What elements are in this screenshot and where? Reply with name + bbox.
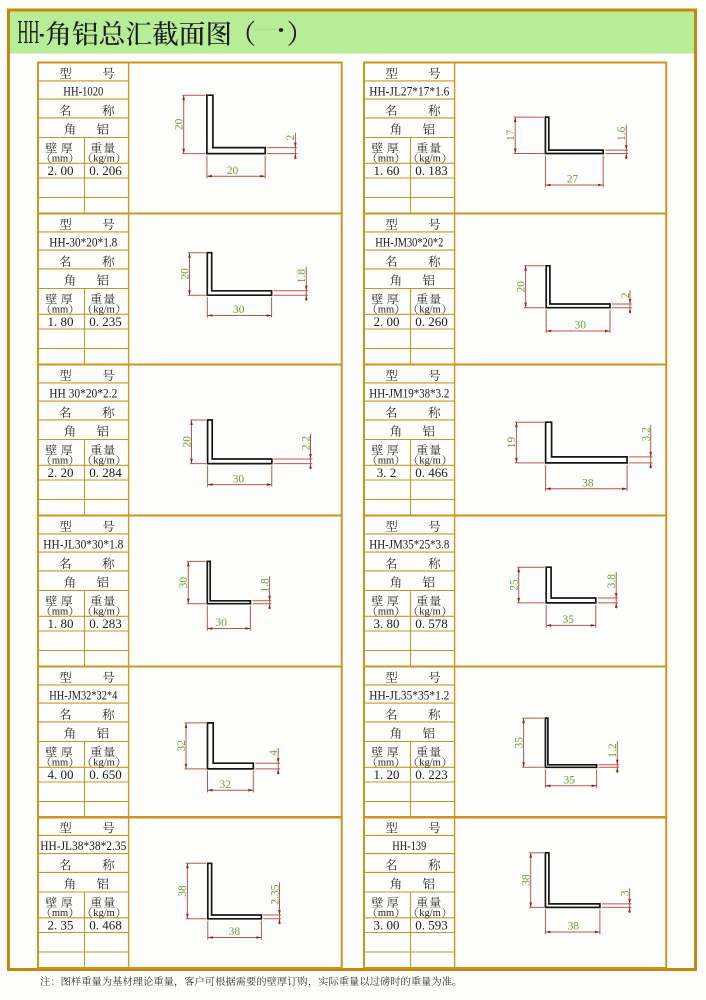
svg-text:2: 2 <box>620 292 632 298</box>
svg-text:4. 00: 4. 00 <box>48 767 74 782</box>
svg-text:0. 578: 0. 578 <box>415 616 448 631</box>
svg-text:1. 80: 1. 80 <box>48 314 74 329</box>
svg-text:35: 35 <box>564 775 576 787</box>
svg-text:35: 35 <box>562 614 574 626</box>
svg-text:3.8: 3.8 <box>606 574 618 589</box>
svg-text:1. 20: 1. 20 <box>374 767 400 782</box>
svg-text:HH-1020: HH-1020 <box>63 84 103 99</box>
svg-text:2.2: 2.2 <box>300 436 312 451</box>
svg-text:3. 80: 3. 80 <box>374 616 400 631</box>
svg-text:20: 20 <box>227 165 239 177</box>
svg-text:3: 3 <box>619 890 631 896</box>
svg-text:2.35: 2.35 <box>269 884 281 904</box>
svg-text:HH-JL35*35*1.2: HH-JL35*35*1.2 <box>369 688 449 703</box>
svg-text:HH-139: HH-139 <box>392 838 426 853</box>
svg-text:38: 38 <box>521 874 533 886</box>
svg-text:HH-JM19*38*3.2: HH-JM19*38*3.2 <box>369 386 449 401</box>
svg-text:0. 593: 0. 593 <box>415 917 448 932</box>
svg-text:0. 468: 0. 468 <box>89 917 122 932</box>
svg-text:30: 30 <box>178 577 190 589</box>
svg-text:17: 17 <box>505 129 517 141</box>
svg-text:HH-30*20*1.8: HH-30*20*1.8 <box>49 235 117 250</box>
svg-text:1.2: 1.2 <box>607 743 619 758</box>
svg-text:0. 183: 0. 183 <box>415 163 448 178</box>
svg-text:30: 30 <box>233 473 245 485</box>
svg-text:0. 260: 0. 260 <box>415 314 448 329</box>
svg-text:HH-JM35*25*3.8: HH-JM35*25*3.8 <box>369 537 449 552</box>
svg-text:38: 38 <box>582 478 594 490</box>
svg-text:30: 30 <box>233 304 245 316</box>
svg-text:30: 30 <box>575 320 587 332</box>
svg-text:0. 206: 0. 206 <box>89 163 122 178</box>
svg-text:1.8: 1.8 <box>259 578 271 593</box>
svg-text:2. 20: 2. 20 <box>48 465 74 480</box>
svg-text:HH 30*20*2.2: HH 30*20*2.2 <box>49 386 117 401</box>
svg-text:1.8: 1.8 <box>296 269 308 284</box>
svg-text:2. 00: 2. 00 <box>374 314 400 329</box>
svg-text:HH-JL27*17*1.6: HH-JL27*17*1.6 <box>369 84 449 99</box>
svg-text:20: 20 <box>181 436 193 448</box>
svg-text:0. 283: 0. 283 <box>89 616 122 631</box>
svg-text:HH-JM30*20*2: HH-JM30*20*2 <box>375 235 443 250</box>
svg-text:32: 32 <box>220 779 232 791</box>
svg-text:38: 38 <box>229 926 241 938</box>
svg-text:20: 20 <box>515 281 527 293</box>
svg-text:38: 38 <box>177 885 189 897</box>
svg-text:HH-: HH- <box>18 13 45 50</box>
svg-text:0. 223: 0. 223 <box>415 767 448 782</box>
svg-text:HH-JL30*30*1.8: HH-JL30*30*1.8 <box>43 537 123 552</box>
svg-text:38: 38 <box>568 921 580 933</box>
svg-text:1. 60: 1. 60 <box>374 163 400 178</box>
svg-text:27: 27 <box>567 174 579 186</box>
svg-text:25: 25 <box>509 579 521 591</box>
svg-text:1. 80: 1. 80 <box>48 616 74 631</box>
svg-text:32: 32 <box>176 740 188 752</box>
svg-text:0. 235: 0. 235 <box>89 314 122 329</box>
svg-text:HH-JL38*38*2.35: HH-JL38*38*2.35 <box>40 838 126 853</box>
svg-text:3. 2: 3. 2 <box>377 465 397 480</box>
svg-text:30: 30 <box>216 617 228 629</box>
svg-text:3.2: 3.2 <box>641 427 653 442</box>
svg-text:HH-JM32*32*4: HH-JM32*32*4 <box>49 688 117 703</box>
svg-text:3. 00: 3. 00 <box>374 917 400 932</box>
svg-text:2: 2 <box>285 134 297 140</box>
svg-text:0. 466: 0. 466 <box>415 465 448 480</box>
svg-text:0. 650: 0. 650 <box>89 767 122 782</box>
svg-text:35: 35 <box>513 737 525 749</box>
svg-text:0. 284: 0. 284 <box>89 465 122 480</box>
svg-text:20: 20 <box>179 268 191 280</box>
svg-text:4: 4 <box>268 750 280 756</box>
svg-text:19: 19 <box>506 437 518 449</box>
svg-text:20: 20 <box>174 118 186 130</box>
svg-text:1.6: 1.6 <box>616 126 628 141</box>
svg-text:2. 00: 2. 00 <box>48 163 74 178</box>
svg-text:2. 35: 2. 35 <box>48 917 74 932</box>
